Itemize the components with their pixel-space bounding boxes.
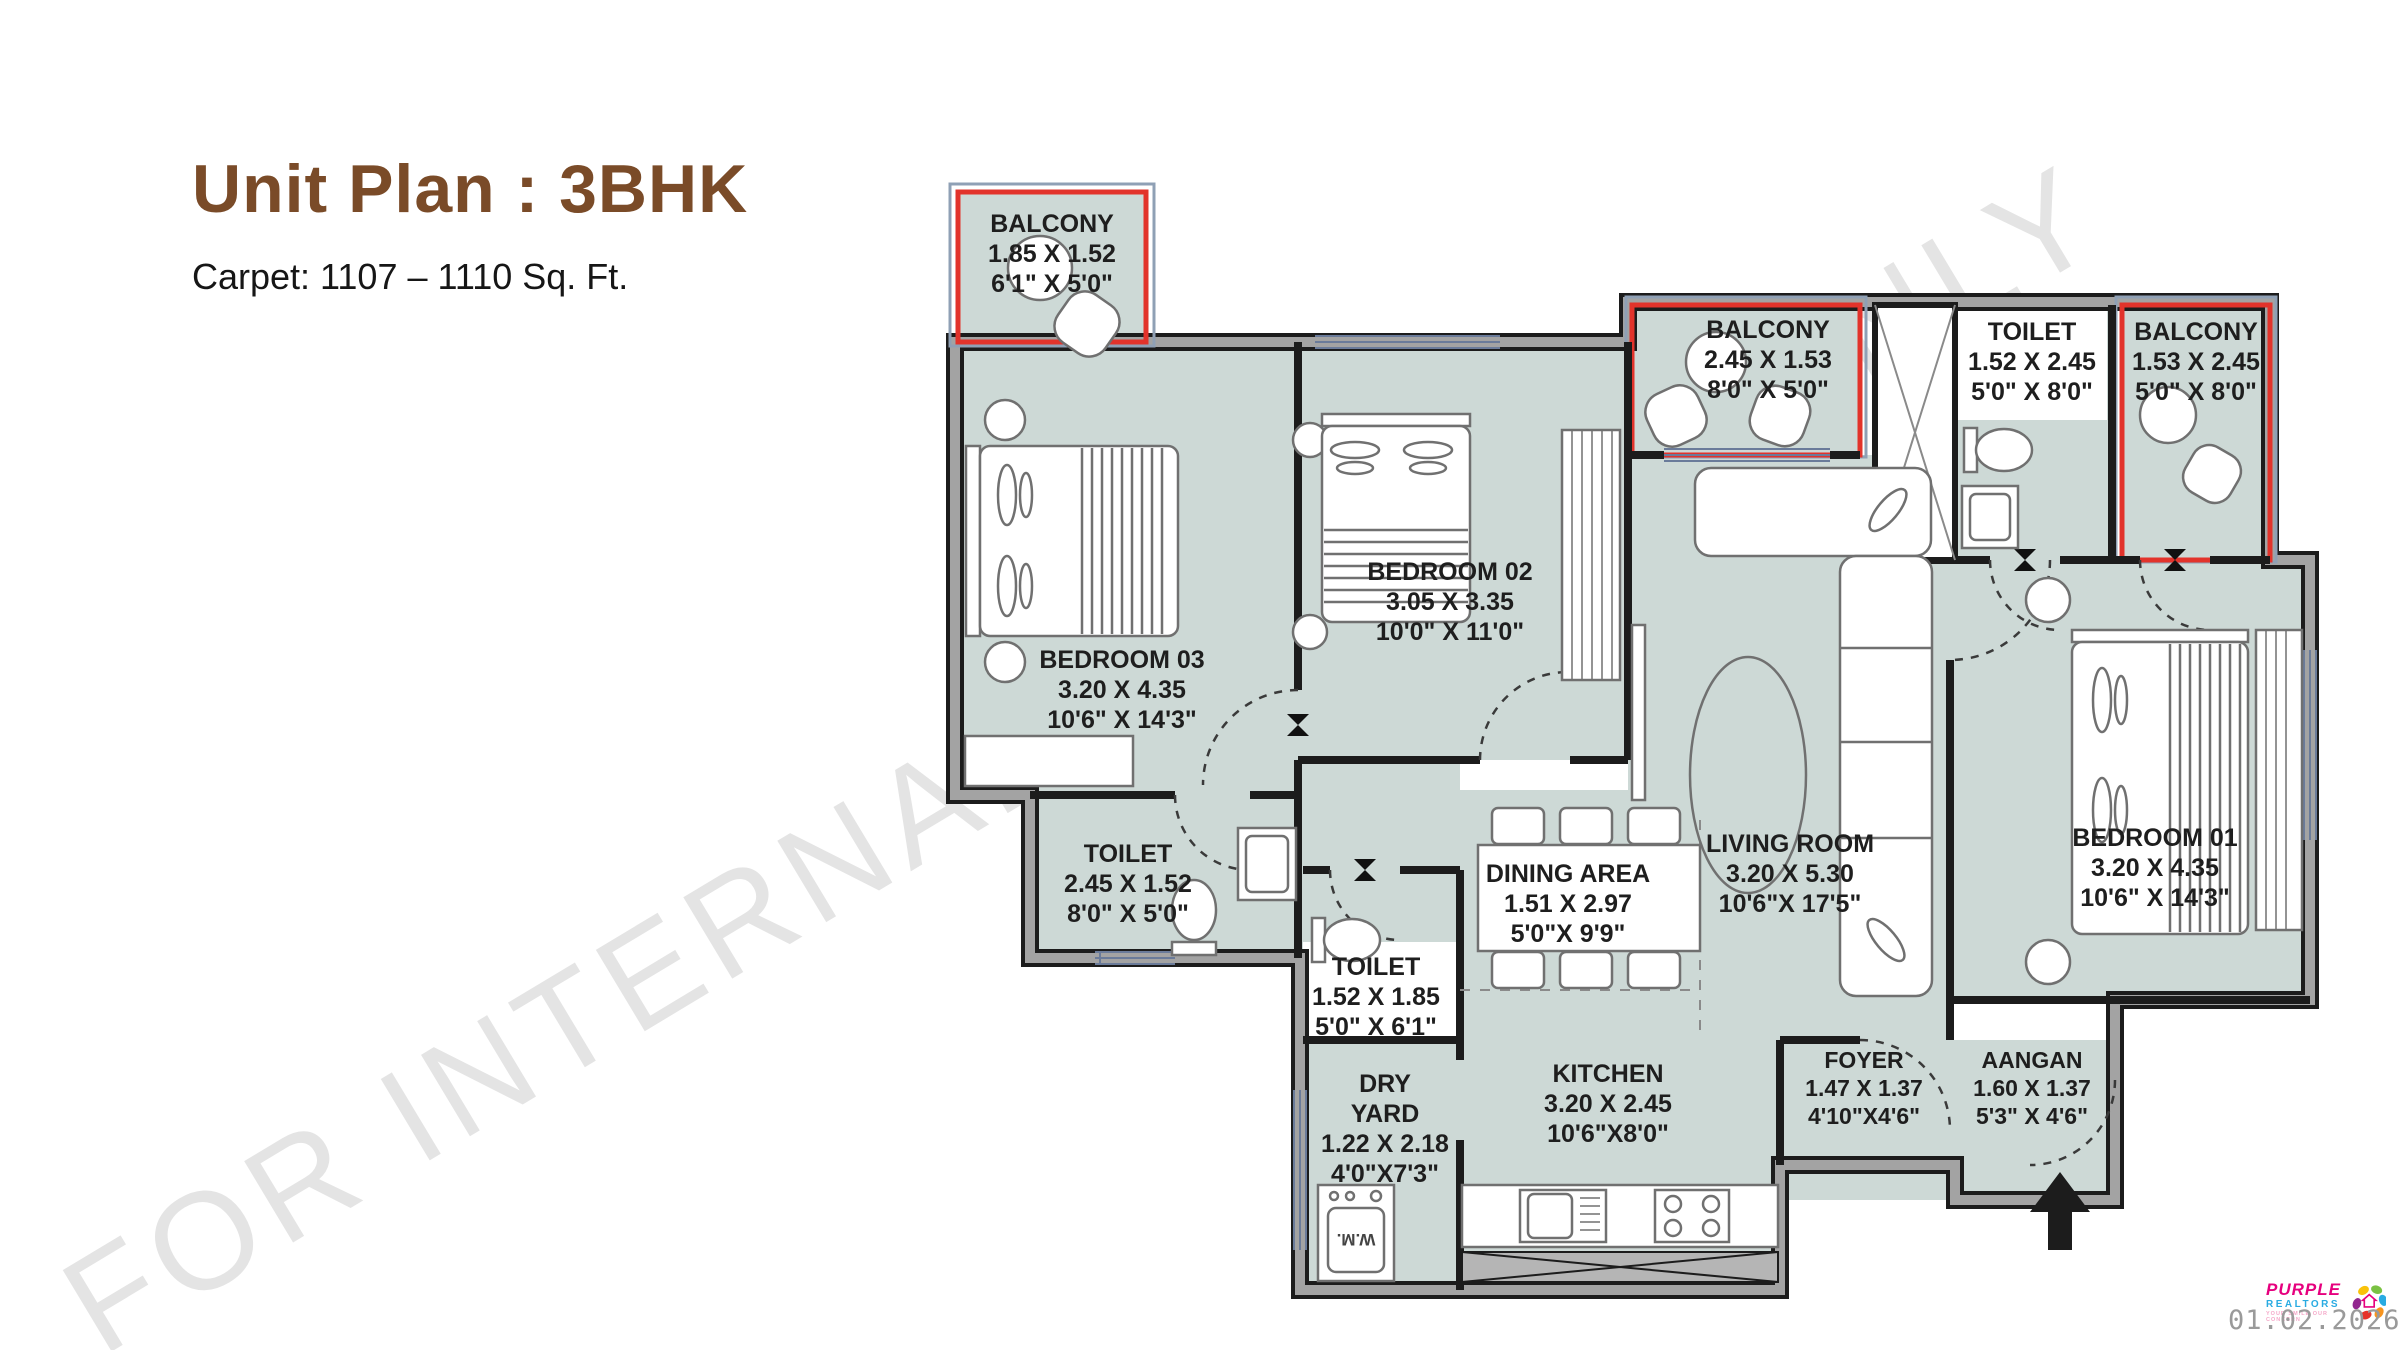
label-balcony-mid: BALCONY 2.45 X 1.53 8'0" X 5'0" <box>1704 316 1832 404</box>
svg-text:DRY: DRY <box>1359 1070 1411 1098</box>
svg-text:KITCHEN: KITCHEN <box>1552 1060 1663 1088</box>
logo-brand-name: PURPLE <box>2266 1281 2348 1298</box>
svg-text:BEDROOM 02: BEDROOM 02 <box>1367 558 1532 586</box>
washing-machine-label: W.M. <box>1337 1230 1376 1249</box>
svg-text:4'0"X7'3": 4'0"X7'3" <box>1331 1160 1439 1188</box>
kitchen-counter-icon <box>1462 1185 1778 1247</box>
svg-text:8'0" X 5'0": 8'0" X 5'0" <box>1707 376 1829 404</box>
label-kitchen: KITCHEN 3.20 X 2.45 10'6"X8'0" <box>1544 1060 1672 1148</box>
svg-text:1.47 X 1.37: 1.47 X 1.37 <box>1805 1075 1923 1101</box>
svg-text:10'6"X 17'5": 10'6"X 17'5" <box>1719 890 1862 918</box>
svg-text:3.20 X 4.35: 3.20 X 4.35 <box>2091 854 2219 882</box>
label-balcony-right: BALCONY 1.53 X 2.45 5'0" X 8'0" <box>2132 318 2260 406</box>
svg-text:1.60 X 1.37: 1.60 X 1.37 <box>1973 1075 2091 1101</box>
page: FOR INTERNAL ONLY Unit Plan : 3BHK Carpe… <box>0 0 2400 1350</box>
svg-text:BEDROOM 03: BEDROOM 03 <box>1039 646 1204 674</box>
svg-text:3.20 X 4.35: 3.20 X 4.35 <box>1058 676 1186 704</box>
svg-text:2.45 X 1.52: 2.45 X 1.52 <box>1064 870 1192 898</box>
svg-text:TOILET: TOILET <box>1084 840 1172 868</box>
svg-text:TOILET: TOILET <box>1332 953 1420 981</box>
svg-text:YARD: YARD <box>1351 1100 1420 1128</box>
wardrobe-icon-bedroom02 <box>1562 430 1620 680</box>
svg-text:BALCONY: BALCONY <box>990 210 1114 238</box>
tv-unit-icon <box>1632 625 1645 800</box>
wardrobe-icon-bedroom01 <box>2256 630 2302 930</box>
svg-text:5'0" X 8'0": 5'0" X 8'0" <box>1971 378 2093 406</box>
label-bedroom-01: BEDROOM 01 3.20 X 4.35 10'6" X 14'3" <box>2072 824 2237 912</box>
svg-text:4'10"X4'6": 4'10"X4'6" <box>1808 1103 1920 1129</box>
svg-text:BEDROOM 01: BEDROOM 01 <box>2072 824 2237 852</box>
svg-text:LIVING ROOM: LIVING ROOM <box>1706 830 1874 858</box>
svg-text:1.52 X 1.85: 1.52 X 1.85 <box>1312 983 1440 1011</box>
svg-text:3.20 X 2.45: 3.20 X 2.45 <box>1544 1090 1672 1118</box>
floor-plan: BALCONY 1.85 X 1.52 6'1" X 5'0" BEDROOM … <box>0 0 2400 1350</box>
label-bedroom-02: BEDROOM 02 3.05 X 3.35 10'0" X 11'0" <box>1367 558 1532 646</box>
svg-text:FOYER: FOYER <box>1824 1047 1904 1073</box>
svg-text:10'6" X 14'3": 10'6" X 14'3" <box>1047 706 1197 734</box>
svg-text:BALCONY: BALCONY <box>1706 316 1830 344</box>
svg-text:TOILET: TOILET <box>1988 318 2076 346</box>
svg-text:8'0" X 5'0": 8'0" X 5'0" <box>1067 900 1189 928</box>
svg-text:6'1" X 5'0": 6'1" X 5'0" <box>991 270 1113 298</box>
svg-text:10'6"X8'0": 10'6"X8'0" <box>1547 1120 1669 1148</box>
svg-text:10'6" X 14'3": 10'6" X 14'3" <box>2080 884 2230 912</box>
svg-text:DINING AREA: DINING AREA <box>1486 860 1650 888</box>
svg-text:3.05 X 3.35: 3.05 X 3.35 <box>1386 588 1514 616</box>
label-aangan: AANGAN 1.60 X 1.37 5'3" X 4'6" <box>1973 1047 2091 1129</box>
svg-text:3.20 X 5.30: 3.20 X 5.30 <box>1726 860 1854 888</box>
svg-text:1.22 X 2.18: 1.22 X 2.18 <box>1321 1130 1449 1158</box>
bottom-hatched-wall <box>1462 1252 1778 1282</box>
date-stamp: 01.02.2026 <box>2228 1305 2400 1336</box>
svg-text:1.52 X 2.45: 1.52 X 2.45 <box>1968 348 2096 376</box>
label-balcony-top-left: BALCONY 1.85 X 1.52 6'1" X 5'0" <box>988 210 1116 298</box>
svg-text:5'0" X 6'1": 5'0" X 6'1" <box>1315 1013 1437 1041</box>
svg-text:1.85 X 1.52: 1.85 X 1.52 <box>988 240 1116 268</box>
svg-text:1.51 X 2.97: 1.51 X 2.97 <box>1504 890 1632 918</box>
svg-text:BALCONY: BALCONY <box>2134 318 2258 346</box>
label-bedroom-03: BEDROOM 03 3.20 X 4.35 10'6" X 14'3" <box>1039 646 1204 734</box>
label-living-room: LIVING ROOM 3.20 X 5.30 10'6"X 17'5" <box>1706 830 1874 918</box>
svg-text:2.45 X 1.53: 2.45 X 1.53 <box>1704 346 1832 374</box>
svg-text:5'0" X 8'0": 5'0" X 8'0" <box>2135 378 2257 406</box>
svg-text:5'3" X 4'6": 5'3" X 4'6" <box>1976 1103 2088 1129</box>
svg-text:1.53 X 2.45: 1.53 X 2.45 <box>2132 348 2260 376</box>
svg-text:AANGAN: AANGAN <box>1982 1047 2083 1073</box>
svg-text:5'0"X 9'9": 5'0"X 9'9" <box>1511 920 1626 948</box>
svg-text:10'0" X 11'0": 10'0" X 11'0" <box>1376 618 1524 646</box>
